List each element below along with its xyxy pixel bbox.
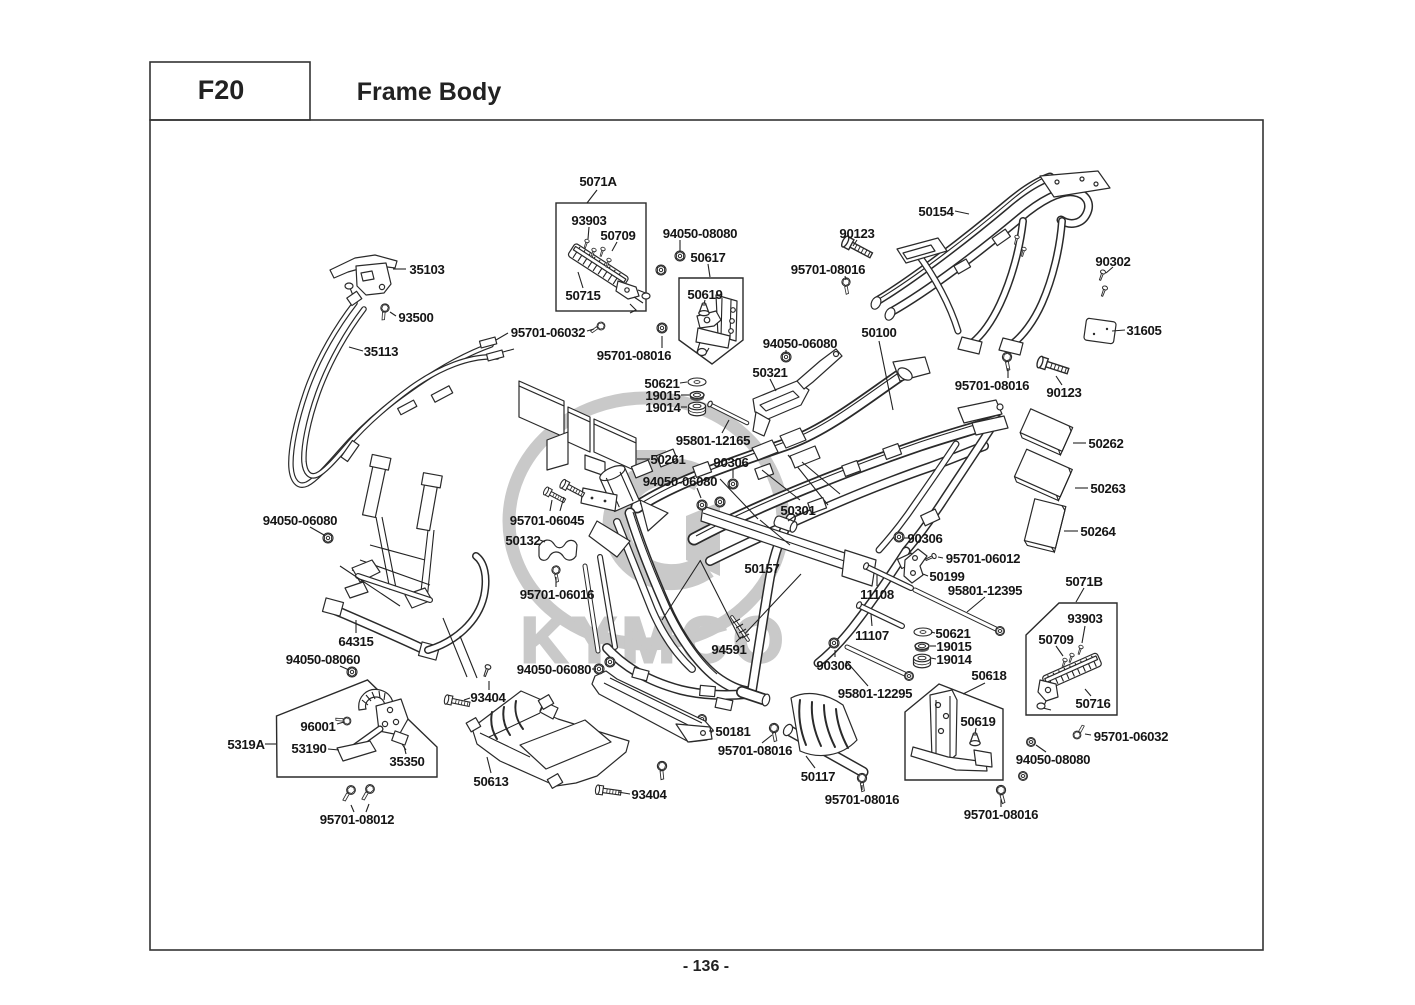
svg-text:35103: 35103 bbox=[409, 262, 444, 277]
svg-text:50262: 50262 bbox=[1088, 436, 1123, 451]
svg-text:95701-08016: 95701-08016 bbox=[825, 792, 899, 807]
svg-text:93903: 93903 bbox=[1067, 611, 1102, 626]
svg-text:50132: 50132 bbox=[505, 533, 540, 548]
svg-text:95801-12295: 95801-12295 bbox=[838, 686, 912, 701]
svg-text:11108: 11108 bbox=[860, 587, 894, 602]
svg-text:19014: 19014 bbox=[645, 400, 681, 415]
svg-text:50100: 50100 bbox=[861, 325, 896, 340]
svg-text:94050-06080: 94050-06080 bbox=[517, 662, 591, 677]
svg-text:50264: 50264 bbox=[1080, 524, 1116, 539]
svg-text:96001: 96001 bbox=[300, 719, 335, 734]
svg-text:90306: 90306 bbox=[816, 658, 851, 673]
svg-text:50199: 50199 bbox=[929, 569, 964, 584]
svg-text:31605: 31605 bbox=[1126, 323, 1161, 338]
svg-text:90123: 90123 bbox=[839, 226, 874, 241]
svg-text:94050-08060: 94050-08060 bbox=[286, 652, 360, 667]
svg-text:50715: 50715 bbox=[565, 288, 600, 303]
svg-text:50261: 50261 bbox=[650, 452, 685, 467]
svg-text:- 136 -: - 136 - bbox=[683, 958, 729, 975]
svg-text:94050-06080: 94050-06080 bbox=[643, 474, 717, 489]
svg-text:5071A: 5071A bbox=[579, 174, 617, 189]
svg-text:95701-06016: 95701-06016 bbox=[520, 587, 594, 602]
svg-text:95701-08016: 95701-08016 bbox=[791, 262, 865, 277]
svg-text:50716: 50716 bbox=[1075, 696, 1110, 711]
svg-text:50618: 50618 bbox=[971, 668, 1006, 683]
svg-text:94050-06080: 94050-06080 bbox=[763, 336, 837, 351]
svg-text:35350: 35350 bbox=[389, 754, 424, 769]
svg-text:90306: 90306 bbox=[907, 531, 942, 546]
svg-text:95701-08016: 95701-08016 bbox=[955, 378, 1029, 393]
svg-text:5071B: 5071B bbox=[1065, 574, 1102, 589]
svg-text:95701-06032: 95701-06032 bbox=[511, 325, 585, 340]
svg-text:95701-08012: 95701-08012 bbox=[320, 812, 394, 827]
svg-text:94050-08080: 94050-08080 bbox=[1016, 752, 1090, 767]
svg-text:50154: 50154 bbox=[918, 204, 954, 219]
svg-text:50709: 50709 bbox=[1038, 632, 1073, 647]
svg-text:90302: 90302 bbox=[1095, 254, 1130, 269]
svg-text:90123: 90123 bbox=[1046, 385, 1081, 400]
svg-text:64315: 64315 bbox=[338, 634, 373, 649]
svg-text:94050-08080: 94050-08080 bbox=[663, 226, 737, 241]
svg-text:19014: 19014 bbox=[936, 652, 972, 667]
svg-text:95701-06012: 95701-06012 bbox=[946, 551, 1020, 566]
svg-text:94050-06080: 94050-06080 bbox=[263, 513, 337, 528]
svg-text:95801-12165: 95801-12165 bbox=[676, 433, 750, 448]
svg-text:95701-06032: 95701-06032 bbox=[1094, 729, 1168, 744]
svg-text:95801-12395: 95801-12395 bbox=[948, 583, 1022, 598]
svg-text:50619: 50619 bbox=[687, 287, 722, 302]
svg-text:11107: 11107 bbox=[855, 628, 889, 643]
svg-text:F20: F20 bbox=[198, 75, 245, 105]
svg-text:94591: 94591 bbox=[711, 642, 746, 657]
svg-text:53190: 53190 bbox=[291, 741, 326, 756]
svg-text:93903: 93903 bbox=[571, 213, 606, 228]
svg-text:93404: 93404 bbox=[631, 787, 667, 802]
svg-text:50709: 50709 bbox=[600, 228, 635, 243]
svg-text:50263: 50263 bbox=[1090, 481, 1125, 496]
svg-text:50181: 50181 bbox=[715, 724, 750, 739]
svg-text:50617: 50617 bbox=[690, 250, 725, 265]
svg-text:93500: 93500 bbox=[398, 310, 433, 325]
svg-text:95701-08016: 95701-08016 bbox=[964, 807, 1038, 822]
svg-text:95701-08016: 95701-08016 bbox=[597, 348, 671, 363]
svg-text:35113: 35113 bbox=[364, 344, 398, 359]
svg-text:50619: 50619 bbox=[960, 714, 995, 729]
svg-text:95701-06045: 95701-06045 bbox=[510, 513, 584, 528]
svg-text:50157: 50157 bbox=[744, 561, 779, 576]
svg-text:50117: 50117 bbox=[801, 769, 835, 784]
svg-text:90306: 90306 bbox=[713, 455, 748, 470]
svg-text:50301: 50301 bbox=[780, 503, 815, 518]
svg-text:Frame Body: Frame Body bbox=[357, 78, 502, 106]
svg-text:93404: 93404 bbox=[470, 690, 506, 705]
svg-text:50321: 50321 bbox=[752, 365, 787, 380]
svg-text:5319A: 5319A bbox=[227, 737, 265, 752]
svg-text:95701-08016: 95701-08016 bbox=[718, 743, 792, 758]
svg-text:50613: 50613 bbox=[473, 774, 508, 789]
